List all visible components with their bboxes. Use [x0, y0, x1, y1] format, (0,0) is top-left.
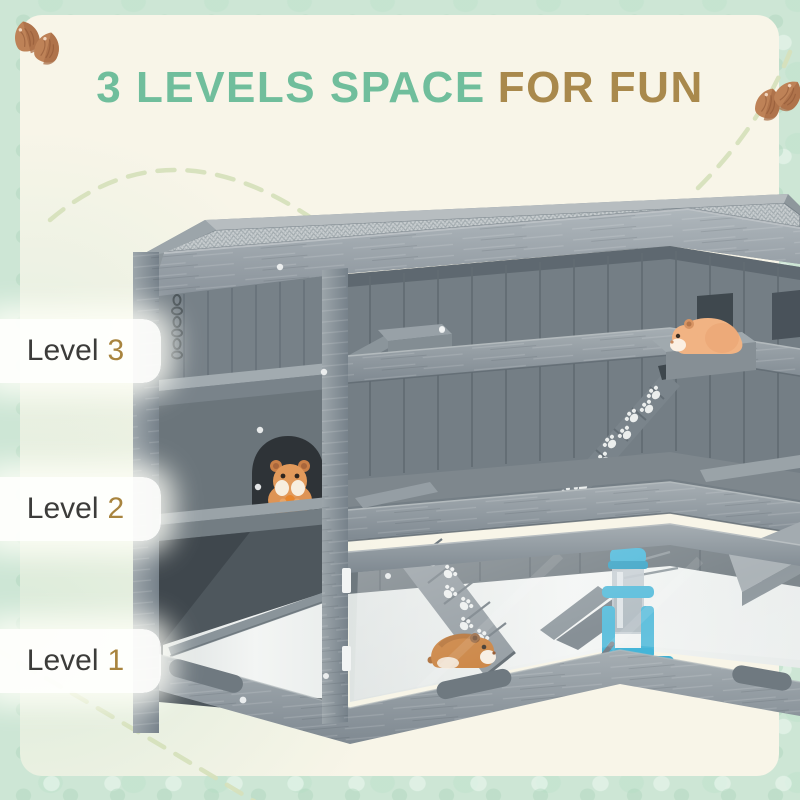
cage-left-section — [159, 274, 348, 718]
title-accent-text: FOR FUN — [498, 63, 704, 112]
dashed-arc-top-left — [50, 170, 320, 224]
product-infographic: { "title": { "main": "3 LEVELS SPACE", "… — [0, 0, 800, 800]
hinge — [342, 646, 351, 671]
level-number: 3 — [108, 334, 125, 368]
level-number: 2 — [108, 492, 125, 526]
level-label: Level — [27, 334, 99, 368]
hinge — [342, 568, 351, 593]
hamster-cage — [133, 194, 800, 744]
level3-recess — [772, 290, 800, 340]
level-1-callout: Level 1 — [0, 629, 161, 693]
page-title: 3 LEVELS SPACEFOR FUN — [0, 63, 800, 113]
almond-seeds-top-left — [11, 19, 63, 68]
level-label: Level — [27, 644, 99, 678]
title-main-text: 3 LEVELS SPACE — [96, 63, 485, 112]
level-2-callout: Level 2 — [0, 477, 161, 541]
level-3-callout: Level 3 — [0, 319, 161, 383]
level-number: 1 — [108, 644, 125, 678]
level-label: Level — [27, 492, 99, 526]
